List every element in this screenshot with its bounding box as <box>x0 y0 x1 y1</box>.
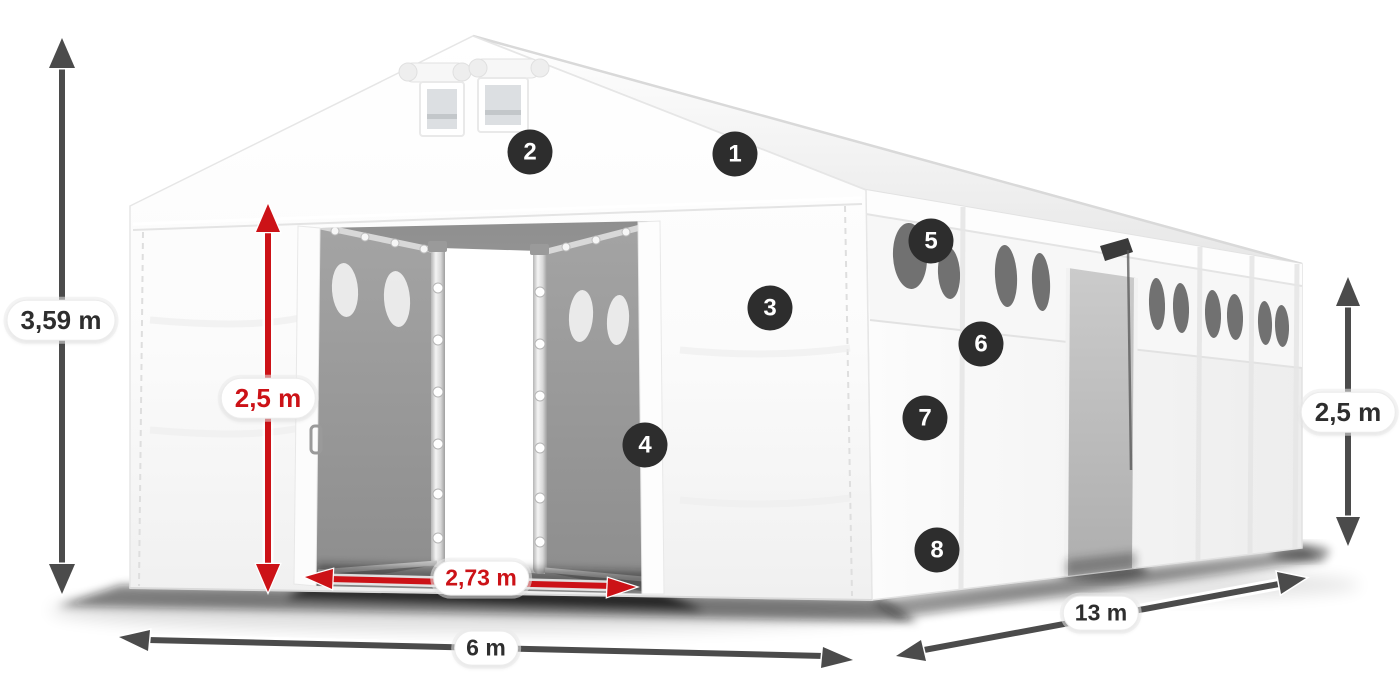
tent-dimension-diagram: 3,59 m 2,5 m 2,73 m 6 m 13 m 2,5 m 1 2 3… <box>0 0 1400 700</box>
front-door-opening <box>294 221 664 594</box>
hotspot-badge-7[interactable]: 7 <box>903 396 948 441</box>
dim-label-entrance-width: 2,73 m <box>433 561 529 596</box>
hotspot-badge-2[interactable]: 2 <box>508 130 553 175</box>
dim-label-width: 6 m <box>454 631 518 666</box>
dim-label-entrance-height: 2,5 m <box>221 378 316 419</box>
hotspot-badge-4[interactable]: 4 <box>623 423 668 468</box>
hotspot-badge-5[interactable]: 5 <box>909 219 954 264</box>
hotspot-badge-8[interactable]: 8 <box>915 528 960 573</box>
dim-label-length: 13 m <box>1063 596 1139 631</box>
tent-illustration <box>0 0 1400 700</box>
hotspot-badge-1[interactable]: 1 <box>713 132 758 177</box>
dim-label-total-height: 3,59 m <box>7 300 116 341</box>
hotspot-badge-6[interactable]: 6 <box>959 322 1004 367</box>
hotspot-badge-3[interactable]: 3 <box>748 286 793 331</box>
side-door-opening <box>1066 238 1136 576</box>
dim-label-side-height: 2,5 m <box>1301 392 1396 433</box>
